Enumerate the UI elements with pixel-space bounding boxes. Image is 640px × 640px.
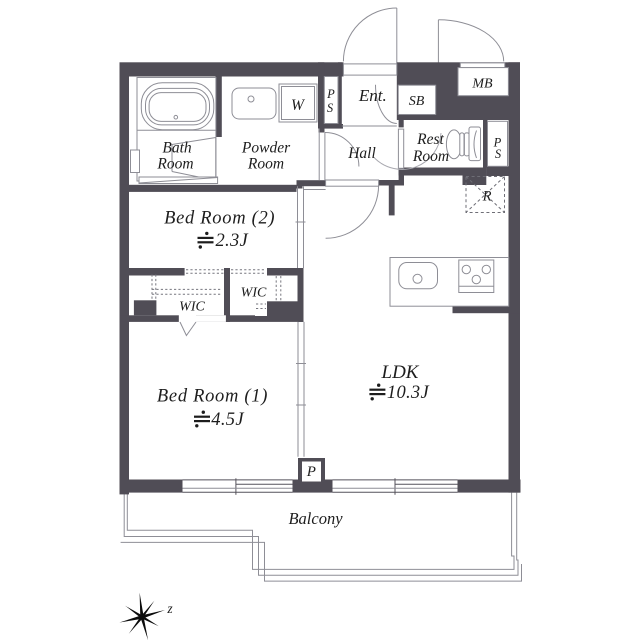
svg-text:Room: Room <box>412 148 449 165</box>
svg-text:Room: Room <box>156 155 193 172</box>
svg-text:S: S <box>327 101 334 115</box>
svg-text:MB: MB <box>471 76 493 91</box>
svg-text:2.3J: 2.3J <box>216 231 249 251</box>
svg-text:S: S <box>495 147 502 161</box>
svg-text:Bed Room (2): Bed Room (2) <box>164 208 275 228</box>
svg-text:Bed Room (1): Bed Room (1) <box>157 387 268 407</box>
svg-text:LDK: LDK <box>381 362 420 383</box>
svg-text:z: z <box>166 601 173 616</box>
svg-text:W: W <box>291 97 306 114</box>
svg-text:P: P <box>306 464 316 480</box>
svg-text:Bath: Bath <box>162 139 192 156</box>
svg-text:Balcony: Balcony <box>288 509 343 528</box>
svg-text:WIC: WIC <box>179 299 205 314</box>
svg-text:P: P <box>326 87 335 101</box>
svg-text:Room: Room <box>247 155 284 172</box>
svg-text:Powder: Powder <box>241 139 291 156</box>
svg-text:Hall: Hall <box>347 145 376 162</box>
svg-text:R: R <box>482 188 492 204</box>
svg-text:WIC: WIC <box>241 285 267 300</box>
svg-text:Rest: Rest <box>416 131 444 148</box>
svg-text:4.5J: 4.5J <box>211 410 244 430</box>
svg-text:10.3J: 10.3J <box>387 383 430 403</box>
svg-text:SB: SB <box>409 94 425 109</box>
svg-text:Ent.: Ent. <box>358 86 387 105</box>
